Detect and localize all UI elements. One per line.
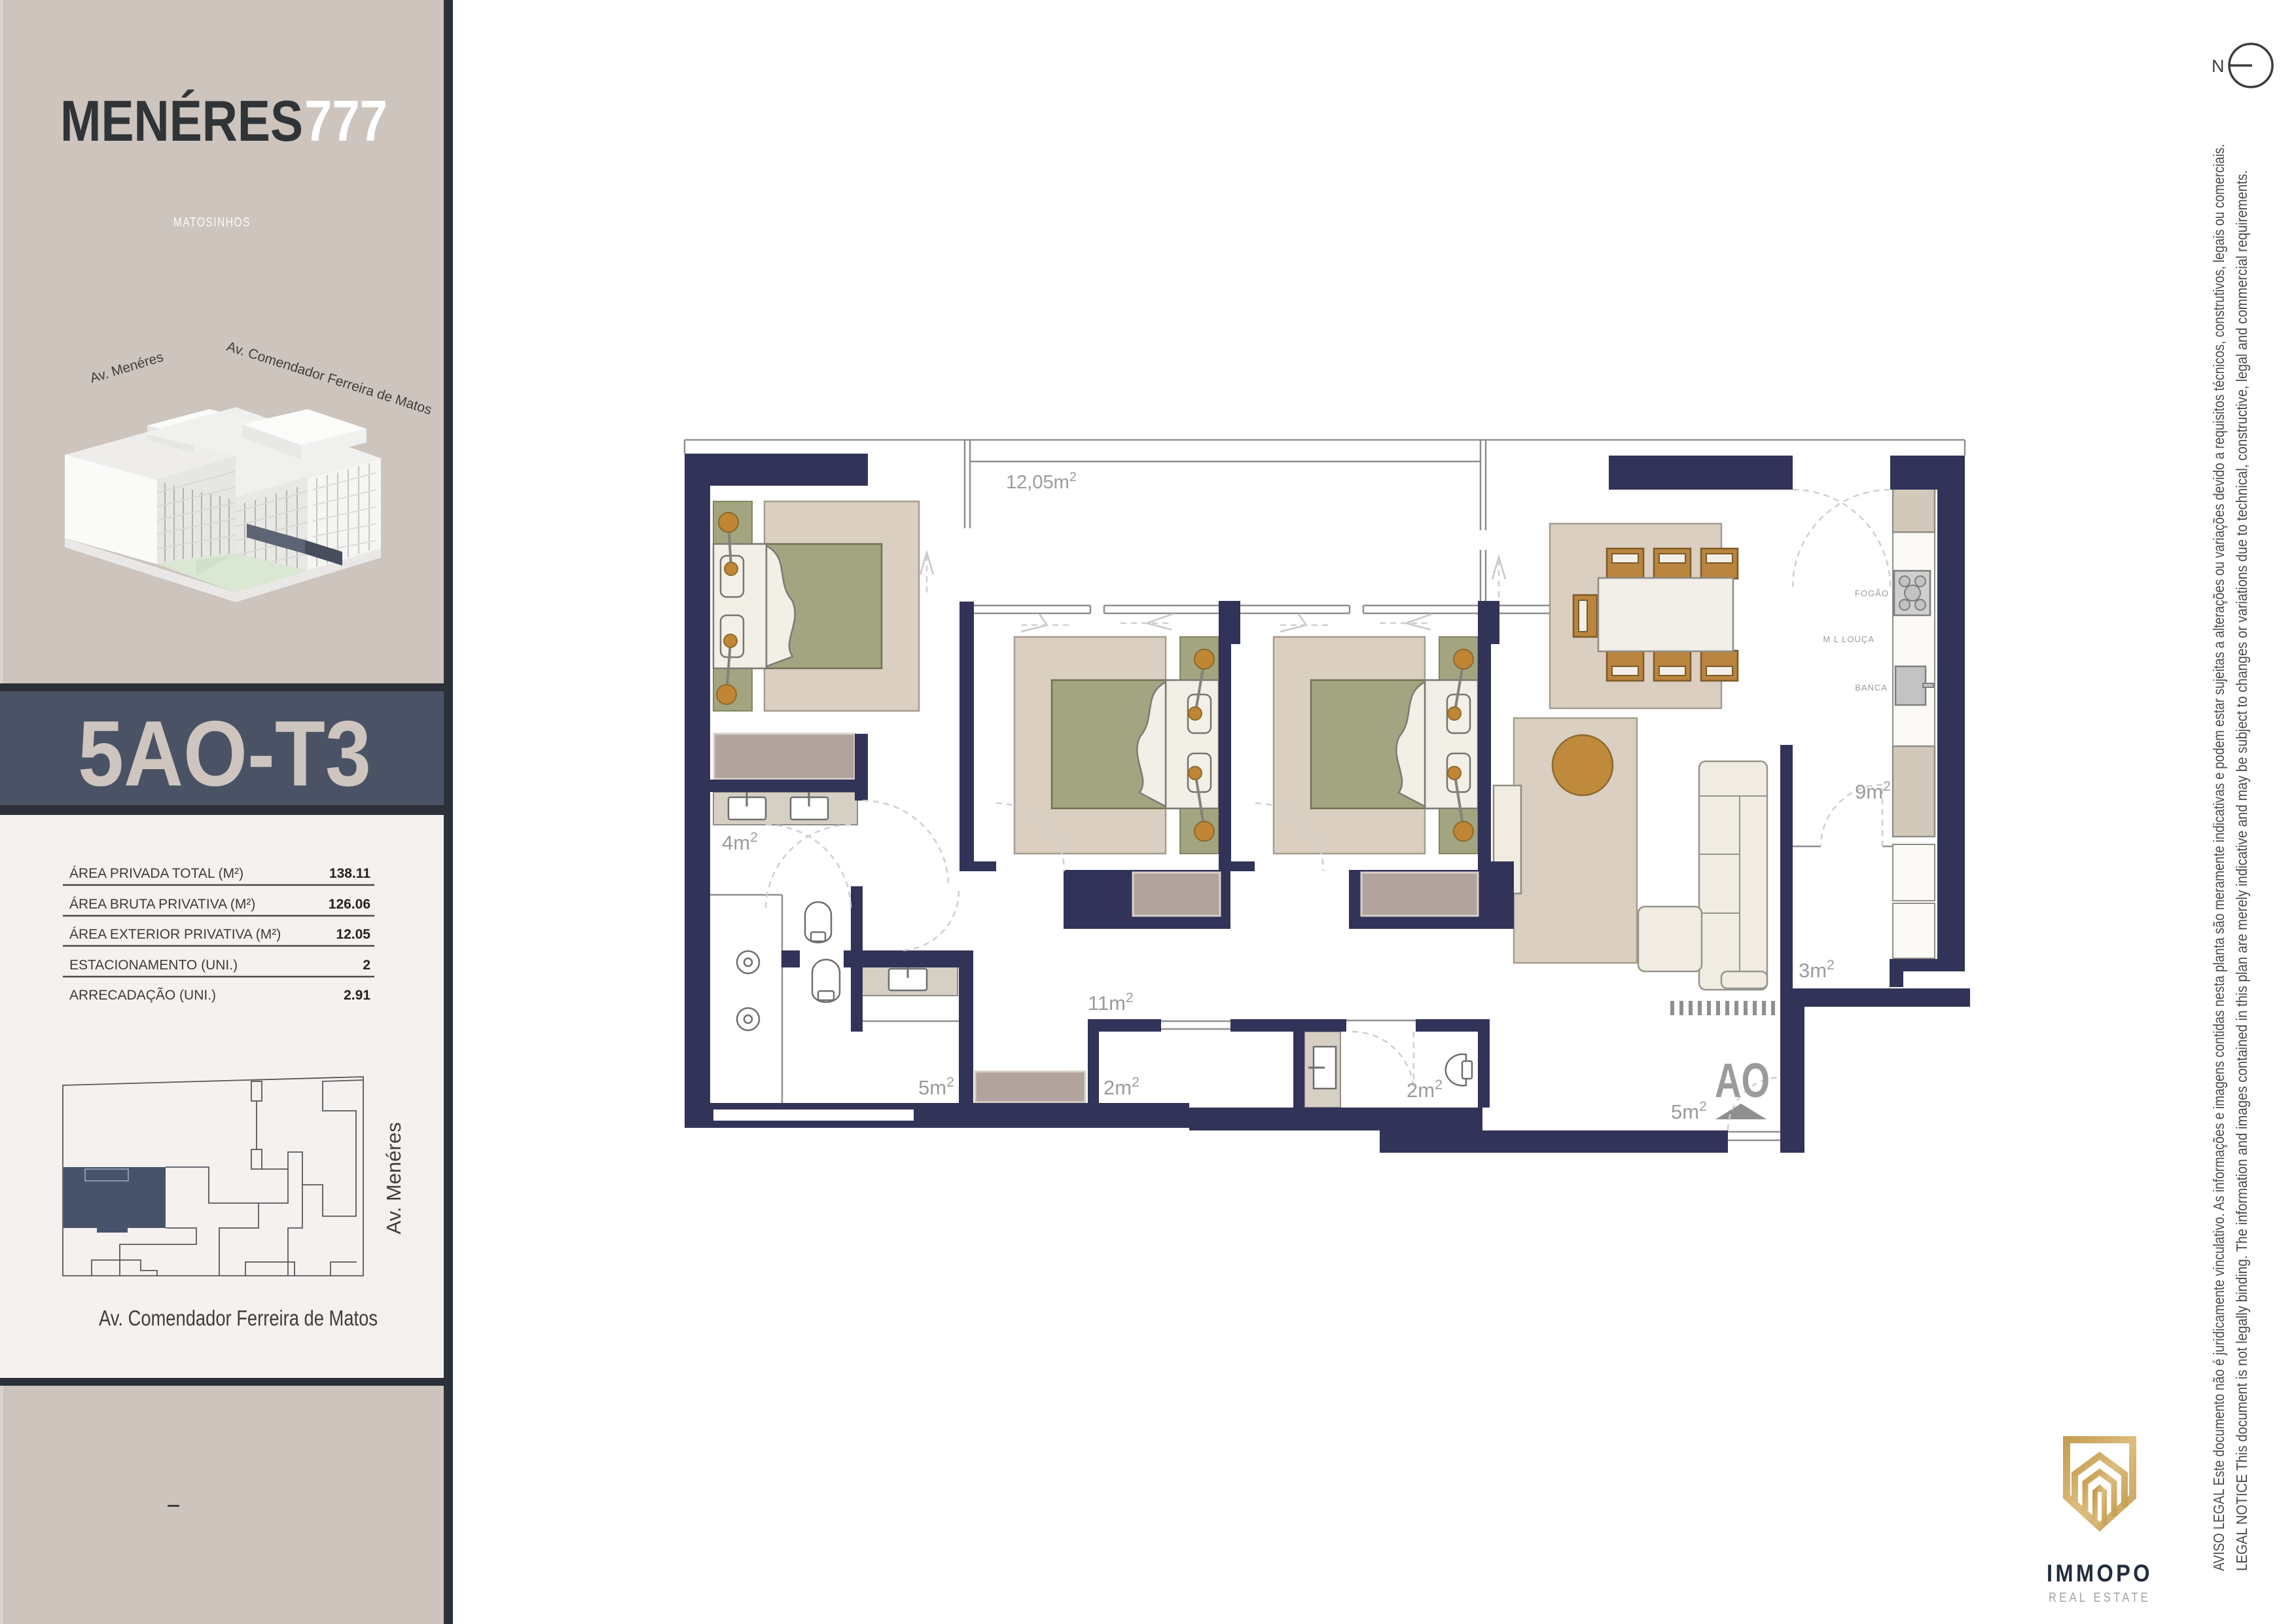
svg-text:11m2: 11m2: [1088, 990, 1134, 1015]
svg-text:MATOSINHOS: MATOSINHOS: [173, 215, 251, 230]
svg-text:Av. Menéres: Av. Menéres: [382, 1122, 405, 1234]
svg-text:AO: AO: [1715, 1053, 1770, 1108]
svg-text:12,05m2: 12,05m2: [1006, 470, 1077, 493]
svg-text:AVISO LEGAL Este documento não: AVISO LEGAL Este documento não é juridic…: [2210, 144, 2227, 1571]
svg-text:138.11: 138.11: [329, 866, 370, 881]
svg-text:LEGAL NOTICE This document is: LEGAL NOTICE This document is not legall…: [2233, 170, 2250, 1571]
svg-text:3m2: 3m2: [1799, 958, 1835, 982]
svg-text:Av. Comendador Ferreira de Mat: Av. Comendador Ferreira de Matos: [99, 1306, 378, 1330]
svg-text:4m2: 4m2: [722, 830, 758, 854]
svg-text:REAL ESTATE: REAL ESTATE: [2049, 1591, 2151, 1605]
svg-text:777: 777: [304, 88, 387, 153]
svg-text:ESTACIONAMENTO (UNI.): ESTACIONAMENTO (UNI.): [69, 958, 238, 973]
svg-text:ÁREA PRIVADA TOTAL (M²): ÁREA PRIVADA TOTAL (M²): [69, 866, 243, 881]
svg-text:ARRECADAÇÃO (UNI.): ARRECADAÇÃO (UNI.): [69, 987, 216, 1003]
svg-text:12.05: 12.05: [336, 927, 370, 942]
svg-text:2m2: 2m2: [1407, 1077, 1443, 1102]
svg-text:BANCA: BANCA: [1855, 683, 1888, 693]
svg-text:5m2: 5m2: [918, 1075, 954, 1099]
svg-text:MENÉRES: MENÉRES: [60, 88, 303, 153]
svg-text:5m2: 5m2: [1671, 1099, 1707, 1123]
svg-text:2m2: 2m2: [1103, 1075, 1139, 1099]
svg-text:2.91: 2.91: [344, 988, 370, 1003]
svg-text:126.06: 126.06: [329, 897, 370, 912]
svg-text:FOGÃO: FOGÃO: [1855, 588, 1889, 598]
svg-text:9m2: 9m2: [1855, 779, 1891, 803]
svg-text:5AO-T3: 5AO-T3: [78, 702, 371, 806]
svg-text:M L LOUÇA: M L LOUÇA: [1823, 634, 1874, 644]
svg-text:IMMOPO: IMMOPO: [2047, 1560, 2153, 1587]
svg-text:ÁREA EXTERIOR PRIVATIVA (M²): ÁREA EXTERIOR PRIVATIVA (M²): [69, 927, 281, 942]
svg-text:2: 2: [363, 958, 370, 973]
svg-text:ÁREA BRUTA PRIVATIVA (M²): ÁREA BRUTA PRIVATIVA (M²): [69, 897, 255, 912]
svg-text:N: N: [2212, 56, 2225, 76]
